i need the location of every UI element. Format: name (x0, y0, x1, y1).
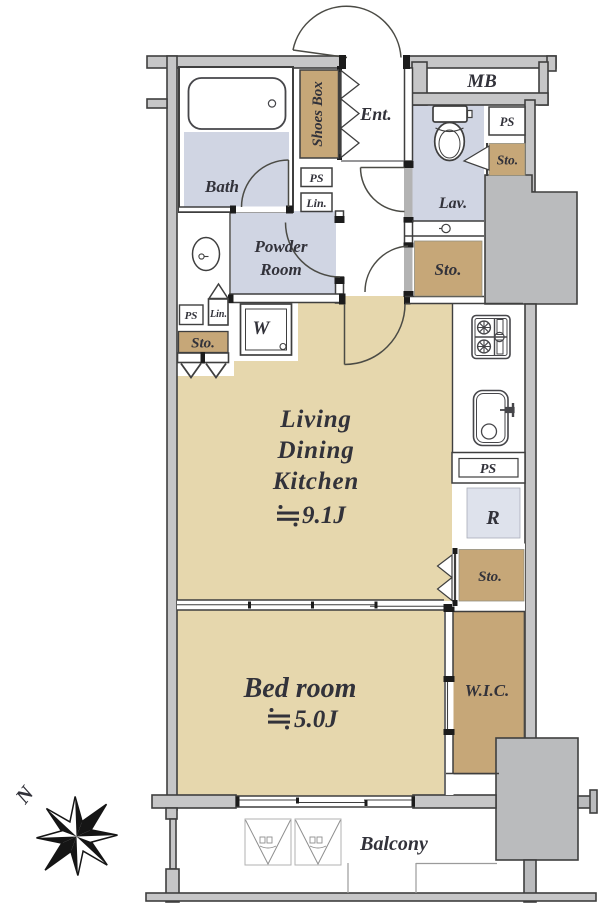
svg-text:PS: PS (480, 462, 497, 477)
svg-text:Powder: Powder (254, 237, 308, 256)
svg-text:W: W (253, 318, 271, 339)
svg-text:Balcony: Balcony (359, 833, 428, 855)
svg-text:MB: MB (466, 71, 497, 92)
svg-text:Bath: Bath (204, 177, 239, 196)
svg-text:Living: Living (279, 406, 351, 433)
svg-text:PS: PS (309, 171, 323, 185)
svg-text:Lav.: Lav. (438, 195, 467, 212)
svg-text:Lin.: Lin. (209, 309, 227, 320)
svg-text:Room: Room (259, 260, 302, 279)
svg-text:Bed room: Bed room (243, 673, 357, 704)
svg-text:R: R (485, 507, 499, 529)
svg-text:9.1J: 9.1J (302, 502, 347, 529)
svg-text:Kitchen: Kitchen (272, 468, 359, 495)
svg-text:Sto.: Sto. (478, 569, 502, 585)
svg-text:Ent.: Ent. (359, 104, 392, 124)
svg-text:Dining: Dining (276, 437, 354, 464)
svg-text:PS: PS (185, 310, 198, 322)
svg-text:5.0J: 5.0J (294, 706, 339, 733)
svg-text:Shoes Box: Shoes Box (310, 81, 326, 147)
svg-text:Lin.: Lin. (305, 196, 326, 210)
svg-text:PS: PS (500, 115, 515, 129)
svg-text:Sto.: Sto. (191, 336, 215, 352)
svg-text:Sto.: Sto. (497, 153, 518, 168)
svg-text:W.I.C.: W.I.C. (465, 681, 510, 700)
svg-text:Sto.: Sto. (435, 260, 462, 279)
